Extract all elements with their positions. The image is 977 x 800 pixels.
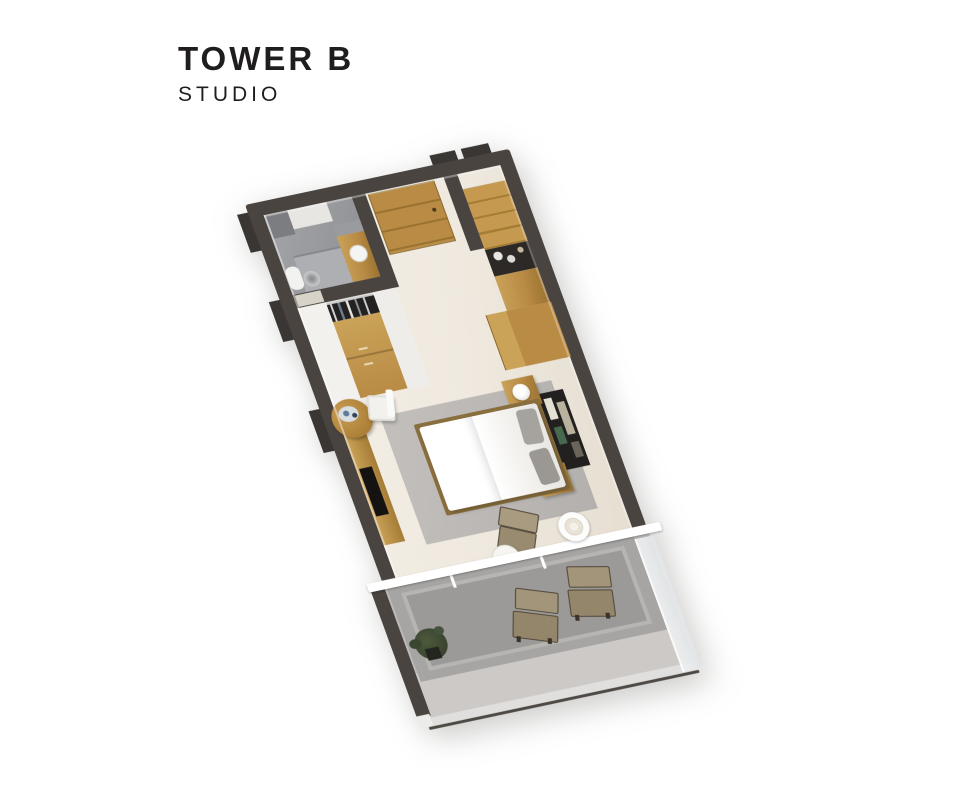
plan-header: TOWER B STUDIO [178,42,354,105]
floorplan [245,149,703,737]
chair-leg [575,615,580,621]
chair-back-cushion [515,588,559,615]
unit-type-subtitle: STUDIO [178,84,354,105]
chair-leg [548,638,552,644]
chair-back-cushion [566,566,612,588]
balcony-lounge-chair [564,566,618,617]
tower-title: TOWER B [178,42,354,77]
balcony-lounge-chair [512,587,560,643]
page: TOWER B STUDIO [0,0,977,800]
chair-leg [517,636,521,642]
chair-leg [605,613,610,619]
